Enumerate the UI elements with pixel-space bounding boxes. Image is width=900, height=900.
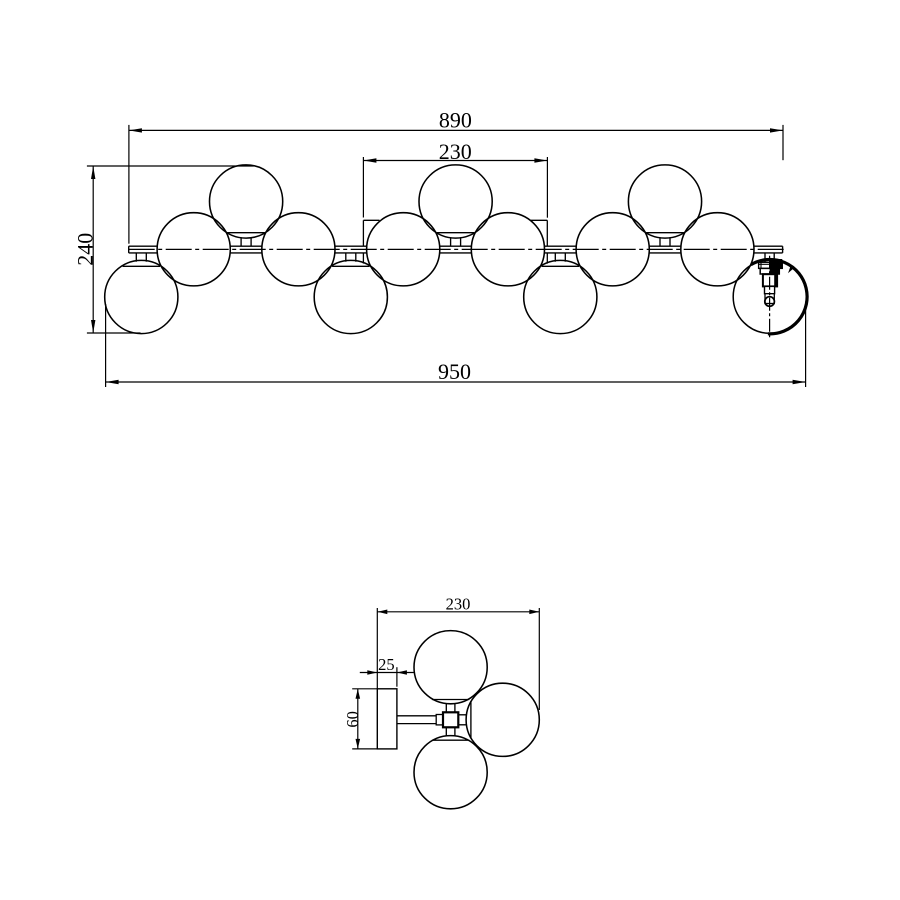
svg-text:230: 230 <box>446 595 471 614</box>
svg-text:890: 890 <box>439 108 472 133</box>
svg-text:240: 240 <box>73 233 98 266</box>
svg-text:25: 25 <box>378 655 395 674</box>
svg-text:230: 230 <box>439 139 472 164</box>
svg-text:60: 60 <box>343 711 362 728</box>
svg-text:950: 950 <box>438 359 471 384</box>
